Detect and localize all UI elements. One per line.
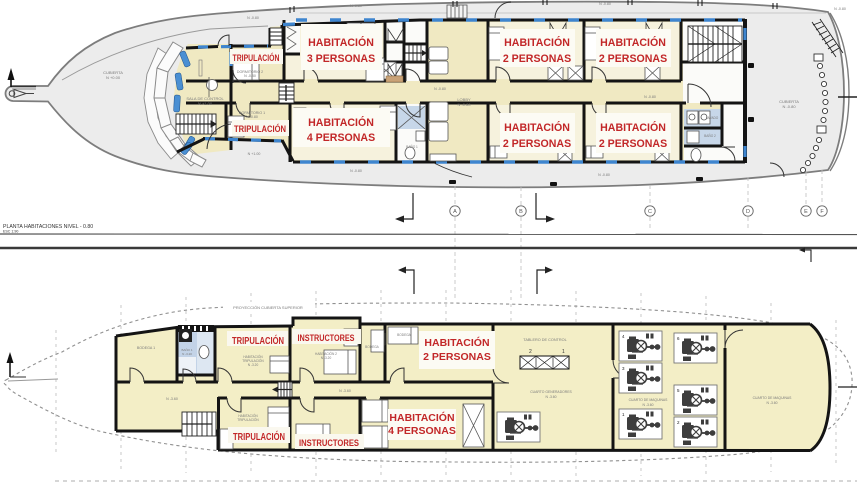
svg-text:N -0.80: N -0.80 [457, 102, 471, 107]
svg-text:2 PERSONAS: 2 PERSONAS [423, 351, 491, 363]
svg-text:HABITACIÓN: HABITACIÓN [504, 36, 570, 49]
svg-text:N -0.80: N -0.80 [599, 2, 611, 6]
svg-text:N -3.60: N -3.60 [339, 389, 351, 393]
svg-text:3 PERSONAS: 3 PERSONAS [307, 53, 375, 65]
svg-text:BODEGA: BODEGA [365, 345, 380, 349]
svg-text:LAVADO: LAVADO [706, 116, 719, 120]
svg-text:HABITACIÓN: HABITACIÓN [600, 121, 666, 134]
svg-text:CUARTO DE MAQUINAS: CUARTO DE MAQUINAS [753, 396, 793, 400]
svg-text:TRIPULACIÓN: TRIPULACIÓN [232, 334, 284, 347]
svg-text:E: E [804, 209, 808, 215]
svg-text:N -0.80: N -0.80 [644, 95, 656, 99]
svg-text:N -0.80: N -0.80 [244, 74, 256, 78]
svg-text:PROYECCIÓN CUBIERTA SUPERIOR: PROYECCIÓN CUBIERTA SUPERIOR [233, 305, 303, 310]
svg-text:4 PERSONAS: 4 PERSONAS [388, 425, 456, 437]
svg-text:N -0.80: N -0.80 [598, 173, 610, 177]
svg-text:CUARTO GENERADORES: CUARTO GENERADORES [530, 390, 572, 394]
svg-text:BAÑO 1: BAÑO 1 [406, 144, 418, 149]
svg-text:N -0.80: N -0.80 [834, 7, 846, 11]
svg-text:TRIPULACIÓN: TRIPULACIÓN [234, 123, 286, 135]
svg-text:HABITACIÓN: HABITACIÓN [424, 336, 489, 349]
svg-text:CUARTO DE MAQUINAS: CUARTO DE MAQUINAS [629, 398, 669, 402]
svg-text:2 PERSONAS: 2 PERSONAS [503, 53, 571, 65]
svg-text:N +1.00: N +1.00 [248, 152, 261, 156]
svg-text:N -0.80: N -0.80 [782, 104, 796, 109]
svg-text:BODEGA 1: BODEGA 1 [137, 346, 155, 350]
svg-text:HABITACIÓN: HABITACIÓN [308, 36, 374, 49]
svg-text:N -0.80: N -0.80 [350, 4, 362, 8]
svg-text:N -3.60: N -3.60 [545, 395, 556, 399]
svg-text:2 PERSONAS: 2 PERSONAS [503, 138, 571, 150]
svg-text:N -3.60: N -3.60 [642, 403, 653, 407]
svg-text:N -3.20: N -3.20 [182, 352, 192, 356]
svg-text:N -0.80: N -0.80 [246, 115, 258, 119]
svg-text:TRIPULACIÓN: TRIPULACIÓN [237, 417, 259, 422]
svg-text:2: 2 [529, 349, 532, 355]
svg-text:INSTRUCTORES: INSTRUCTORES [298, 333, 355, 344]
svg-text:N -0.80: N -0.80 [434, 87, 446, 91]
svg-text:1: 1 [562, 349, 565, 355]
svg-text:BAÑO 2: BAÑO 2 [704, 133, 716, 138]
svg-text:N -3.20: N -3.20 [248, 363, 259, 367]
svg-text:N +0.00: N +0.00 [106, 75, 121, 80]
svg-text:INSTRUCTORES: INSTRUCTORES [299, 438, 359, 449]
svg-text:TABLERO DE CONTROL: TABLERO DE CONTROL [523, 338, 566, 342]
svg-text:TRIPULACIÓN: TRIPULACIÓN [233, 52, 280, 64]
svg-text:N -3.20: N -3.20 [321, 356, 332, 360]
svg-text:HABITACIÓN: HABITACIÓN [600, 36, 666, 49]
svg-text:B: B [519, 209, 523, 215]
svg-text:TRIPULACIÓN: TRIPULACIÓN [233, 430, 285, 443]
svg-text:N -3.60: N -3.60 [166, 397, 178, 401]
svg-text:BODEGA: BODEGA [397, 333, 412, 337]
svg-text:D: D [746, 209, 750, 215]
svg-text:C: C [648, 209, 652, 215]
svg-text:N -0.80: N -0.80 [247, 16, 259, 20]
svg-text:2 PERSONAS: 2 PERSONAS [599, 53, 667, 65]
svg-text:4 PERSONAS: 4 PERSONAS [307, 132, 375, 144]
svg-text:ESC 1:90: ESC 1:90 [3, 230, 18, 234]
svg-text:A: A [453, 209, 457, 215]
svg-text:N -3.60: N -3.60 [766, 401, 777, 405]
svg-text:2 PERSONAS: 2 PERSONAS [599, 138, 667, 150]
svg-text:N -0.80: N -0.80 [350, 169, 362, 173]
svg-text:HABITACIÓN: HABITACIÓN [504, 121, 570, 134]
svg-text:HABITACIÓN: HABITACIÓN [389, 411, 454, 424]
svg-text:HABITACIÓN: HABITACIÓN [308, 116, 374, 129]
svg-text:N +1.00: N +1.00 [198, 101, 213, 106]
